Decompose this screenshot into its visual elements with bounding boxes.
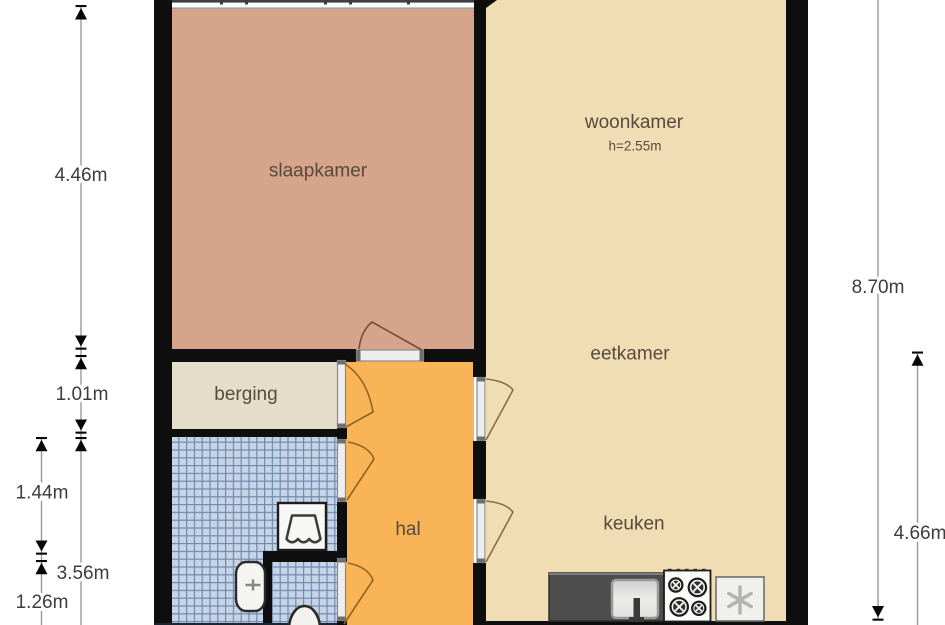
svg-text:3.56m: 3.56m <box>57 563 110 584</box>
svg-text:h=2.55m: h=2.55m <box>609 139 662 154</box>
svg-text:8.70m: 8.70m <box>852 277 905 298</box>
svg-text:4.66m: 4.66m <box>894 523 945 544</box>
svg-text:1.44m: 1.44m <box>16 483 69 504</box>
svg-text:slaapkamer: slaapkamer <box>269 161 368 182</box>
svg-text:1.01m: 1.01m <box>56 384 109 405</box>
svg-text:1.26m: 1.26m <box>16 592 69 613</box>
svg-text:berging: berging <box>214 384 277 405</box>
svg-text:eetkamer: eetkamer <box>590 344 670 365</box>
svg-text:woonkamer: woonkamer <box>584 112 684 133</box>
svg-text:hal: hal <box>395 519 420 540</box>
svg-text:4.46m: 4.46m <box>55 165 108 186</box>
svg-text:keuken: keuken <box>603 514 664 535</box>
